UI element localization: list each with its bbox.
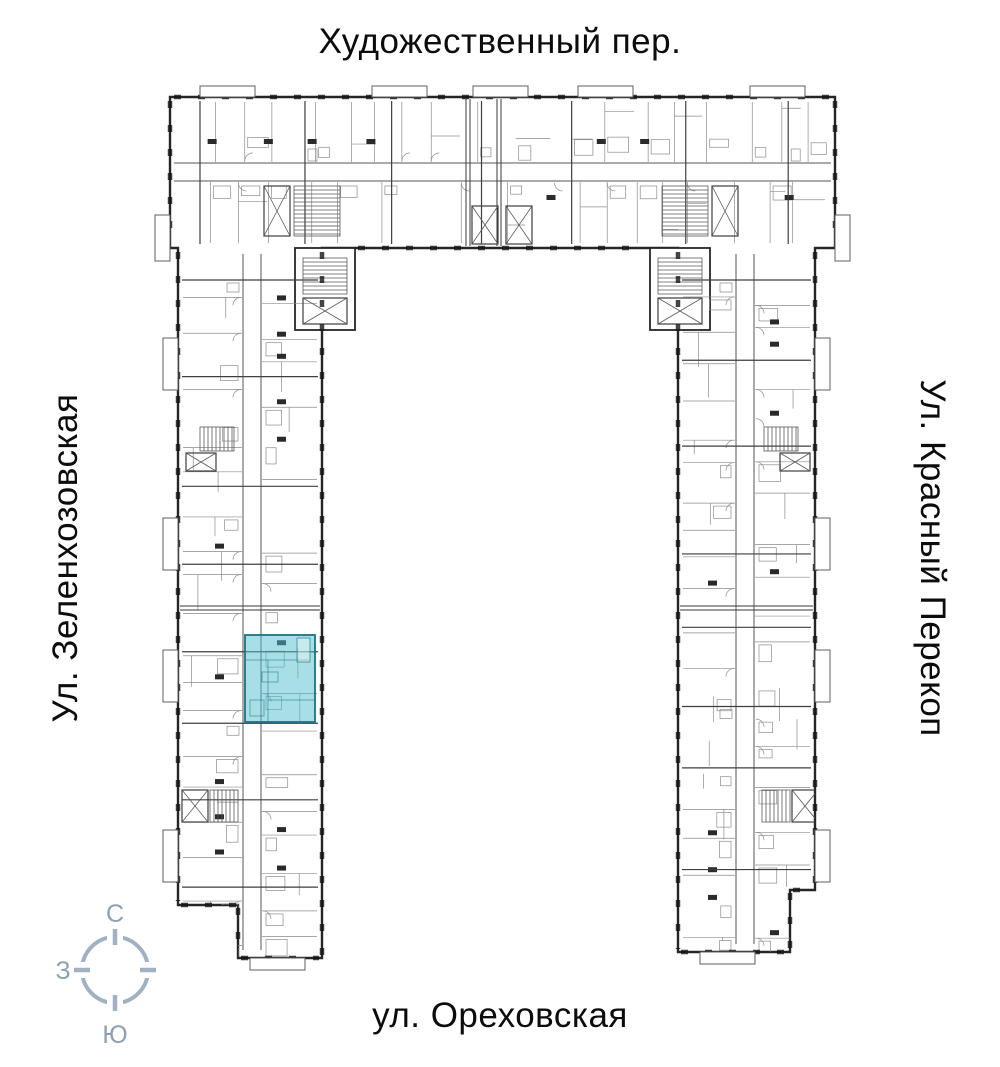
compass-ring: [82, 937, 148, 1003]
entrance-lobby-right: [650, 248, 710, 330]
floor-plan: С З Ю: [0, 0, 1000, 1067]
street-label-left: Ул. Зеленхозовская: [46, 394, 86, 723]
street-label-right: Ул. Красный Перекоп: [912, 379, 952, 737]
street-label-bottom: ул. Ореховская: [0, 996, 1000, 1036]
apartment-balcony: [297, 638, 310, 662]
selected-apartment[interactable]: [245, 635, 315, 722]
entrance-lobby-left: [295, 248, 355, 330]
building-outline: [170, 97, 835, 958]
compass-north-label: С: [106, 900, 124, 928]
compass-west-label: З: [55, 957, 70, 985]
street-label-top: Художественный пер.: [0, 22, 1000, 62]
